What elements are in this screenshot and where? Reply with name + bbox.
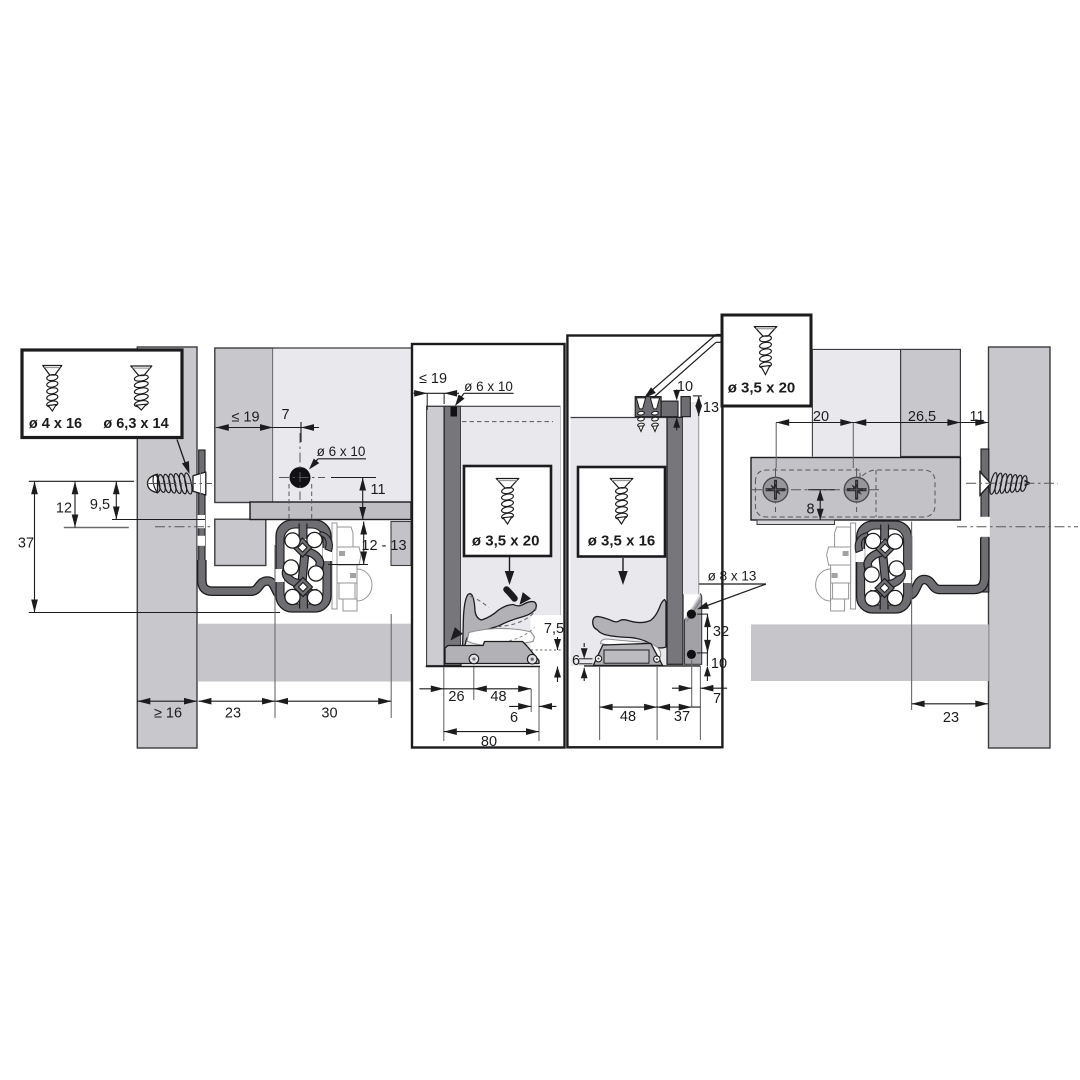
svg-text:80: 80 xyxy=(481,734,497,750)
svg-text:≤ 19: ≤ 19 xyxy=(231,410,259,426)
svg-text:ø 6 x 10: ø 6 x 10 xyxy=(464,379,513,394)
svg-text:37: 37 xyxy=(18,536,34,552)
svg-text:26: 26 xyxy=(448,689,464,705)
svg-text:11: 11 xyxy=(370,482,385,498)
svg-text:11: 11 xyxy=(969,409,984,425)
svg-text:13: 13 xyxy=(703,400,719,416)
svg-text:≥ 16: ≥ 16 xyxy=(154,706,182,722)
svg-text:23: 23 xyxy=(225,706,241,722)
svg-text:48: 48 xyxy=(620,709,636,725)
svg-text:10: 10 xyxy=(711,656,727,672)
svg-text:9,5: 9,5 xyxy=(90,497,110,513)
svg-text:ø 6,3 x 14: ø 6,3 x 14 xyxy=(103,416,168,432)
svg-text:ø 3,5 x 16: ø 3,5 x 16 xyxy=(588,533,656,550)
svg-text:7,5: 7,5 xyxy=(544,621,564,637)
svg-text:6: 6 xyxy=(510,710,518,726)
svg-text:8: 8 xyxy=(806,502,814,518)
svg-text:32: 32 xyxy=(713,624,729,640)
svg-text:12 - 13: 12 - 13 xyxy=(361,538,406,554)
svg-text:12: 12 xyxy=(56,501,72,517)
svg-text:37: 37 xyxy=(674,709,690,725)
svg-text:30: 30 xyxy=(321,706,337,722)
svg-text:≤ 19: ≤ 19 xyxy=(419,371,447,387)
svg-text:ø 8 x 13: ø 8 x 13 xyxy=(708,569,757,584)
svg-text:ø 3,5 x 20: ø 3,5 x 20 xyxy=(728,379,796,396)
svg-text:ø 6 x 10: ø 6 x 10 xyxy=(317,444,366,459)
svg-text:26,5: 26,5 xyxy=(908,409,936,425)
svg-text:ø 4 x 16: ø 4 x 16 xyxy=(29,416,82,432)
svg-text:20: 20 xyxy=(813,409,829,425)
svg-text:6: 6 xyxy=(572,653,580,669)
svg-text:ø 3,5 x 20: ø 3,5 x 20 xyxy=(472,533,540,550)
svg-text:10: 10 xyxy=(677,379,693,395)
svg-text:7: 7 xyxy=(281,407,289,423)
svg-text:7: 7 xyxy=(713,691,721,707)
svg-text:23: 23 xyxy=(943,710,959,726)
svg-text:48: 48 xyxy=(490,689,506,705)
